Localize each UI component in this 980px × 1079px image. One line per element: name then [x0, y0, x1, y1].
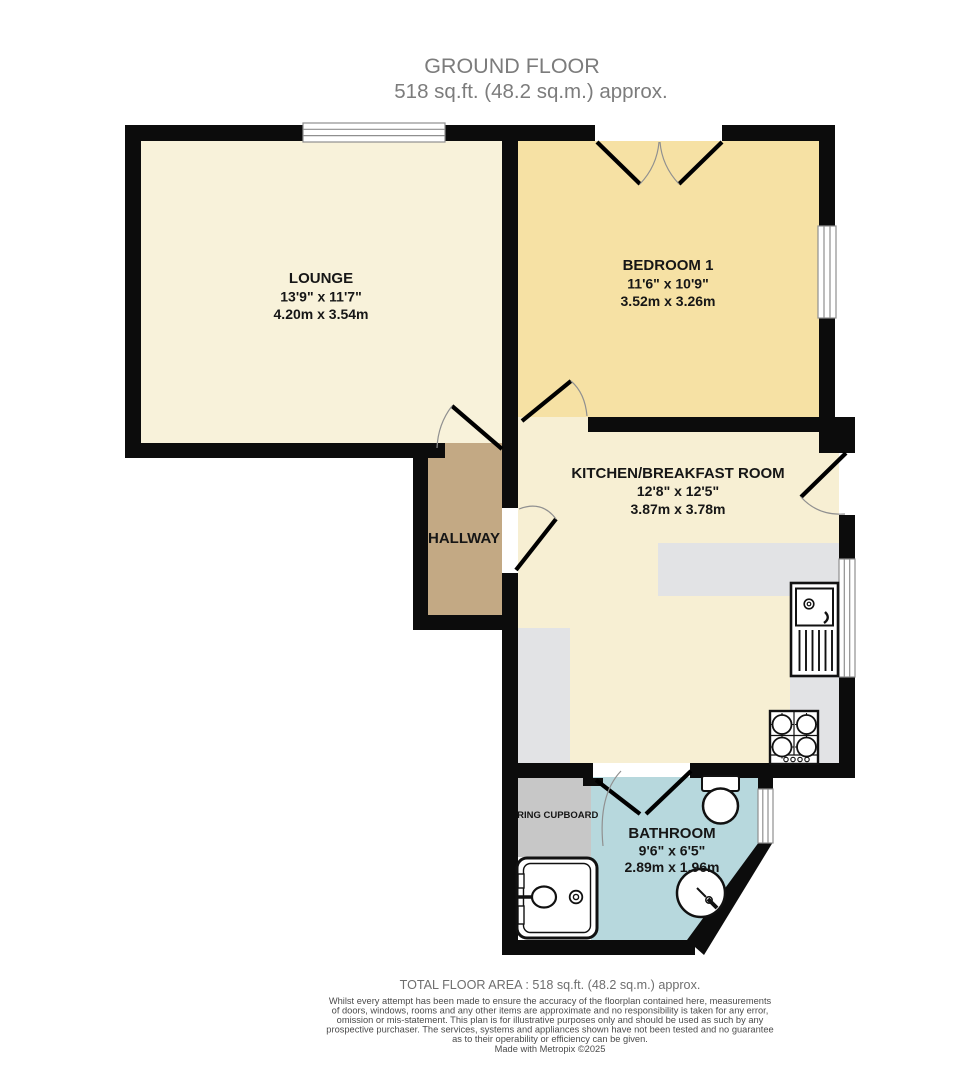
wall-bedroom-right-lower — [819, 317, 835, 417]
kitchen-window — [839, 559, 855, 677]
bathroom-dims-imperial: 9'6" x 6'5" — [639, 843, 706, 859]
title-block: GROUND FLOOR 518 sq.ft. (48.2 sq.m.) app… — [394, 54, 667, 103]
bedroom1-label: BEDROOM 1 — [623, 257, 714, 274]
kitchen-sink — [791, 583, 838, 676]
lounge-dims-metric: 4.20m x 3.54m — [274, 306, 369, 322]
airing-cupboard-label: AIRING CUPBOARD — [508, 810, 599, 821]
page-title: GROUND FLOOR — [424, 54, 600, 78]
disclaimer-line-1: Whilst every attempt has been made to en… — [329, 996, 772, 1006]
bathroom-label: BATHROOM — [628, 825, 715, 842]
shower — [517, 858, 597, 938]
footer-block: TOTAL FLOOR AREA : 518 sq.ft. (48.2 sq.m… — [326, 978, 773, 1054]
wall-kitchen-right-upper — [839, 515, 855, 560]
kitchen-counter-top — [658, 543, 790, 596]
wall-bedroom-top-left — [518, 125, 595, 141]
wall-lounge-bottom — [125, 443, 445, 458]
kitchen-dims-metric: 3.87m x 3.78m — [631, 501, 726, 517]
wall-bottom — [502, 940, 695, 955]
wall-bedroom-right-upper — [819, 125, 835, 227]
disclaimer-line-4: prospective purchaser. The services, sys… — [326, 1025, 773, 1035]
metropix-credit: Made with Metropix ©2025 — [495, 1044, 606, 1054]
wall-bathroom-right-upper — [758, 778, 773, 790]
wall-lounge-left — [125, 125, 141, 458]
bedroom1-dims-metric: 3.52m x 3.26m — [621, 293, 716, 309]
floorplan-page: AIRING CUPBOARD — [0, 0, 980, 1079]
bedroom1-dims-imperial: 11'6" x 10'9" — [627, 276, 708, 292]
basin — [677, 869, 725, 917]
kitchen-dims-imperial: 12'8" x 12'5" — [637, 483, 719, 499]
page-subtitle: 518 sq.ft. (48.2 sq.m.) approx. — [394, 80, 667, 103]
wall-kitchen-right-lower — [839, 676, 855, 778]
lounge-window — [303, 123, 445, 142]
wall-center-upper — [502, 125, 518, 508]
kitchen-label: KITCHEN/BREAKFAST ROOM — [571, 465, 784, 482]
total-floor-area: TOTAL FLOOR AREA : 518 sq.ft. (48.2 sq.m… — [400, 978, 701, 992]
bathroom-dims-metric: 2.89m x 1.96m — [625, 859, 720, 875]
disclaimer-line-2: of doors, windows, rooms and any other i… — [332, 1006, 769, 1016]
disclaimer-line-5: as to their operability or efficiency ca… — [452, 1034, 648, 1044]
lounge-label: LOUNGE — [289, 270, 353, 287]
wall-bedroom-top-right — [722, 125, 835, 141]
floorplan-drawing: AIRING CUPBOARD — [0, 0, 980, 1079]
room-hallway — [428, 443, 502, 615]
kitchen-counter-left — [518, 628, 570, 763]
hallway-label: HALLWAY — [428, 530, 500, 547]
lounge-dims-imperial: 13'9" x 11'7" — [280, 289, 361, 305]
toilet — [702, 776, 739, 824]
wall-kitchen-bottom-left — [502, 763, 593, 778]
bathroom-window — [758, 789, 773, 843]
wall-bedroom-bottom — [588, 417, 835, 432]
bedroom-window — [818, 226, 836, 318]
wall-kitchen-top-right-jog — [819, 417, 855, 453]
bedroom-kitchen-doorway-floor — [518, 417, 588, 432]
wall-hallway-left — [413, 443, 428, 630]
disclaimer-line-3: omission or mis-statement. This plan is … — [337, 1015, 764, 1025]
hob — [770, 711, 818, 764]
